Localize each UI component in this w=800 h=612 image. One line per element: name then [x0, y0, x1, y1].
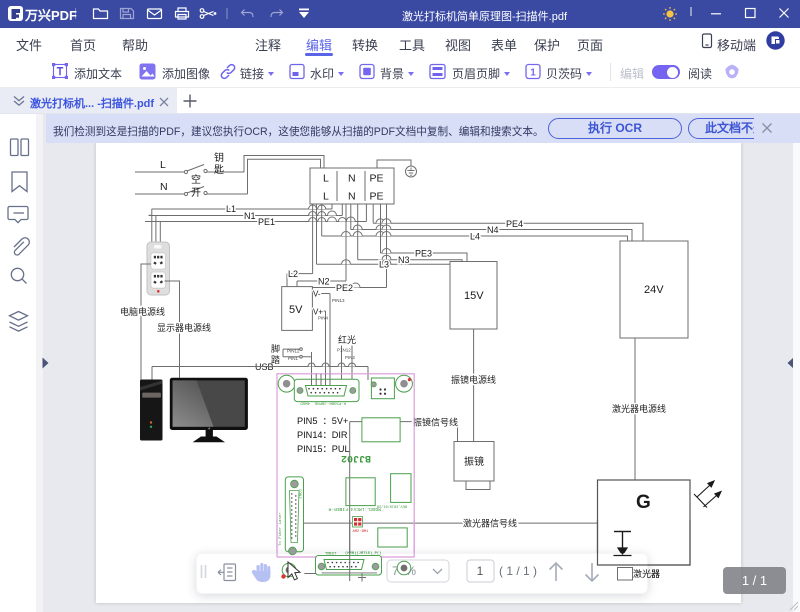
- svg-text:PE: PE: [370, 191, 384, 203]
- svg-text:MODEL:LMCV4-FIBER-M: MODEL:LMCV4-FIBER-M: [328, 506, 381, 512]
- svg-text:显示器电源线: 显示器电源线: [157, 322, 211, 333]
- svg-text:PIN1: PIN1: [288, 356, 299, 361]
- svg-text:N2: N2: [318, 277, 330, 287]
- svg-text:PE: PE: [370, 173, 384, 185]
- svg-text:(HRN)(JRT15)_P(): (HRN)(JRT15)_P(): [345, 551, 381, 556]
- svg-text:踏: 踏: [271, 354, 280, 365]
- svg-text:红光: 红光: [338, 334, 356, 345]
- svg-text:1: 1: [530, 68, 536, 79]
- svg-text:PIN4: PIN4: [318, 316, 329, 321]
- svg-text:激光器: 激光器: [633, 568, 660, 579]
- svg-text:N: N: [348, 191, 356, 203]
- svg-text:PE4: PE4: [506, 219, 523, 229]
- svg-text:PIN12: PIN12: [287, 349, 300, 354]
- svg-text:N4: N4: [487, 225, 499, 235]
- svg-text:匙: 匙: [214, 163, 224, 176]
- svg-text:REV.2019/01/20: REV.2019/01/20: [377, 504, 407, 509]
- svg-text:空: 空: [191, 173, 201, 186]
- svg-text:V-: V-: [313, 290, 321, 299]
- svg-text:PE3: PE3: [415, 249, 432, 259]
- svg-text:N3: N3: [398, 255, 410, 265]
- svg-text:激光器电源线: 激光器电源线: [612, 403, 666, 414]
- svg-text:L: L: [323, 173, 329, 185]
- svg-text:G: G: [636, 492, 651, 513]
- svg-text:CON2: CON2: [297, 489, 301, 499]
- svg-text:N: N: [160, 181, 168, 193]
- svg-text:振镜: 振镜: [464, 455, 484, 468]
- svg-text:5V: 5V: [289, 304, 303, 316]
- svg-text:PE1: PE1: [258, 217, 275, 227]
- svg-text:L3: L3: [379, 260, 389, 270]
- svg-text:振镜信号线: 振镜信号线: [413, 417, 458, 428]
- svg-text:L2: L2: [288, 269, 298, 279]
- svg-text:L1: L1: [226, 204, 236, 214]
- svg-text:K-PSUBK-JBPNG 4WGD: K-PSUBK-JBPNG 4WGD: [300, 401, 346, 405]
- svg-text:电脑电源线: 电脑电源线: [120, 306, 165, 317]
- svg-text:L4: L4: [470, 232, 480, 242]
- svg-text:BJJ02: BJJ02: [341, 452, 371, 463]
- svg-text:L: L: [323, 191, 329, 203]
- svg-text:开: 开: [191, 188, 201, 199]
- svg-text:P1N12: P1N12: [337, 348, 351, 353]
- svg-text:N1: N1: [244, 211, 256, 221]
- svg-text:15V: 15V: [464, 290, 484, 302]
- svg-text:钥: 钥: [214, 151, 224, 164]
- svg-text:振镜电源线: 振镜电源线: [451, 374, 496, 385]
- svg-text:L: L: [160, 159, 166, 171]
- svg-text:TNE5T: TNE5T: [325, 553, 337, 557]
- svg-text:PIN14：DIR: PIN14：DIR: [297, 430, 348, 440]
- svg-text:N: N: [348, 173, 356, 185]
- svg-text:脚: 脚: [271, 344, 280, 354]
- svg-text:PIN2: PIN2: [345, 355, 356, 360]
- svg-text:PIN13: PIN13: [332, 298, 345, 303]
- svg-text:PIN5 ：5V+: PIN5 ：5V+: [297, 416, 348, 426]
- svg-text:PE2: PE2: [336, 283, 353, 293]
- svg-text:24V: 24V: [644, 284, 664, 296]
